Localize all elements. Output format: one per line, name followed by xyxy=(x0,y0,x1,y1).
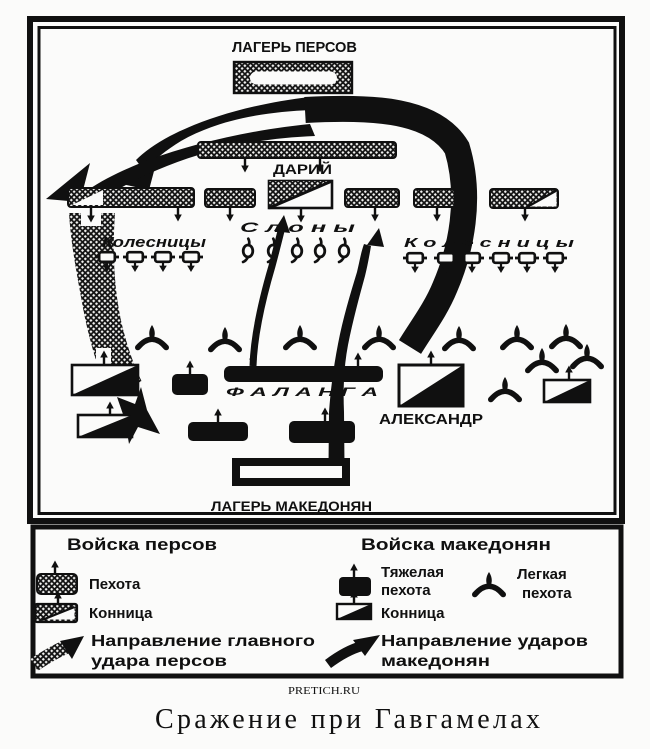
svg-text:Направление главного: Направление главного xyxy=(91,633,315,650)
svg-text:Войска персов: Войска персов xyxy=(67,535,217,554)
svg-text:К о л е с н и ц ы: К о л е с н и ц ы xyxy=(404,235,574,250)
svg-text:Направление ударов: Направление ударов xyxy=(381,633,588,650)
svg-text:PRETICH.RU: PRETICH.RU xyxy=(288,686,361,697)
svg-text:македонян: македонян xyxy=(381,653,490,670)
svg-text:пехота: пехота xyxy=(381,582,431,599)
svg-text:Войска македонян: Войска македонян xyxy=(361,535,551,554)
svg-text:пехота: пехота xyxy=(522,585,572,602)
svg-text:С л о н ы: С л о н ы xyxy=(240,219,355,235)
svg-text:удара персов: удара персов xyxy=(91,653,227,670)
svg-text:Сражение при Гавгамелах: Сражение при Гавгамелах xyxy=(155,704,540,735)
svg-text:АЛЕКСАНДР: АЛЕКСАНДР xyxy=(379,411,483,428)
svg-text:Ф А Л А Н Г А: Ф А Л А Н Г А xyxy=(226,385,378,399)
svg-text:ЛАГЕРЬ ПЕРСОВ: ЛАГЕРЬ ПЕРСОВ xyxy=(232,39,357,56)
svg-text:Конница: Конница xyxy=(89,605,153,622)
svg-text:Конница: Конница xyxy=(381,605,445,622)
svg-text:Тяжелая: Тяжелая xyxy=(381,564,444,581)
svg-text:ДАРИЙ: ДАРИЙ xyxy=(273,162,332,177)
svg-text:Легкая: Легкая xyxy=(517,566,567,583)
svg-text:Колесницы: Колесницы xyxy=(102,234,206,251)
svg-text:Пехота: Пехота xyxy=(89,576,141,593)
svg-text:ЛАГЕРЬ МАКЕДОНЯН: ЛАГЕРЬ МАКЕДОНЯН xyxy=(211,499,372,514)
